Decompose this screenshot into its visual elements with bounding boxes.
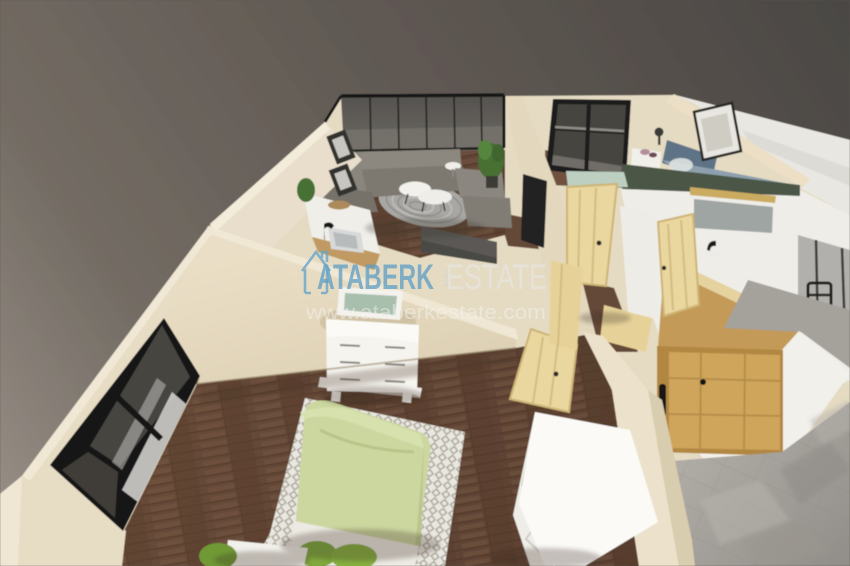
svg-text:ATABERK: ATABERK	[317, 258, 434, 297]
svg-text:www.ataberkestate.com: www.ataberkestate.com	[305, 302, 546, 324]
svg-text:ESTATE: ESTATE	[446, 258, 547, 297]
